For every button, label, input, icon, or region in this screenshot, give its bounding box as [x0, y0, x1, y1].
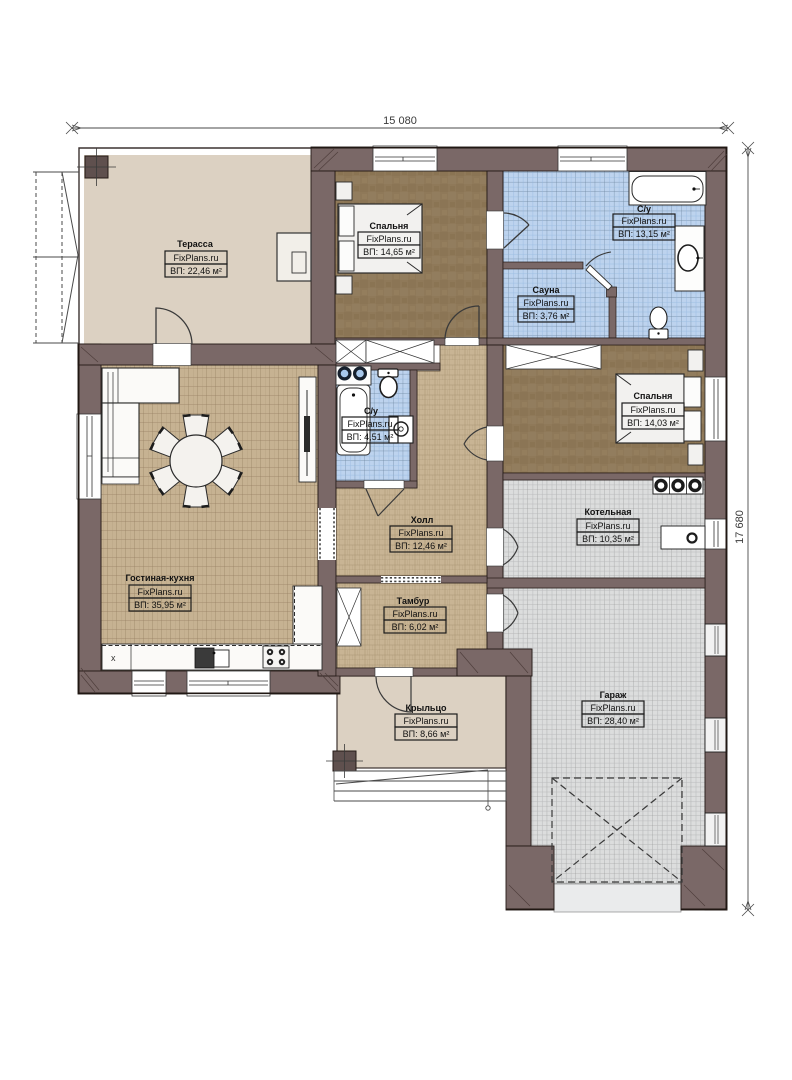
svg-text:FixPlans.ru: FixPlans.ru [590, 703, 635, 713]
svg-text:ВП: 12,46 м²: ВП: 12,46 м² [395, 541, 447, 551]
svg-text:Гараж: Гараж [600, 690, 627, 700]
svg-text:15 080: 15 080 [383, 115, 417, 127]
svg-text:FixPlans.ru: FixPlans.ru [366, 234, 411, 244]
svg-text:ВП: 4,51 м²: ВП: 4,51 м² [347, 432, 394, 442]
svg-text:ВП: 10,35 м²: ВП: 10,35 м² [582, 534, 634, 544]
svg-text:ВП: 8,66 м²: ВП: 8,66 м² [403, 729, 450, 739]
svg-text:ВП: 22,46 м²: ВП: 22,46 м² [170, 266, 222, 276]
svg-text:Спальня: Спальня [370, 221, 409, 231]
svg-text:FixPlans.ru: FixPlans.ru [173, 253, 218, 263]
svg-text:17 680: 17 680 [734, 510, 746, 544]
svg-text:Терасса: Терасса [177, 239, 214, 249]
svg-text:ВП: 28,40 м²: ВП: 28,40 м² [587, 716, 639, 726]
svg-text:Котельная: Котельная [584, 507, 631, 517]
svg-text:С/у: С/у [364, 406, 378, 416]
svg-text:ВП: 14,03 м²: ВП: 14,03 м² [627, 418, 679, 428]
svg-text:FixPlans.ru: FixPlans.ru [398, 528, 443, 538]
svg-text:Гостиная-кухня: Гостиная-кухня [126, 573, 195, 583]
svg-text:ВП: 6,02 м²: ВП: 6,02 м² [392, 622, 439, 632]
svg-text:Тамбур: Тамбур [397, 596, 430, 606]
svg-text:Спальня: Спальня [634, 391, 673, 401]
svg-text:ВП: 14,65 м²: ВП: 14,65 м² [363, 247, 415, 257]
svg-text:x: x [111, 653, 116, 663]
svg-text:FixPlans.ru: FixPlans.ru [585, 521, 630, 531]
svg-text:С/у: С/у [637, 204, 651, 214]
svg-text:FixPlans.ru: FixPlans.ru [403, 716, 448, 726]
svg-text:FixPlans.ru: FixPlans.ru [621, 216, 666, 226]
svg-text:FixPlans.ru: FixPlans.ru [523, 298, 568, 308]
svg-text:ВП: 13,15 м²: ВП: 13,15 м² [618, 229, 670, 239]
svg-text:ВП: 3,76 м²: ВП: 3,76 м² [523, 311, 570, 321]
svg-text:Сауна: Сауна [532, 285, 560, 295]
svg-text:ВП: 35,95 м²: ВП: 35,95 м² [134, 600, 186, 610]
svg-text:FixPlans.ru: FixPlans.ru [392, 609, 437, 619]
svg-text:Холл: Холл [411, 515, 434, 525]
svg-text:FixPlans.ru: FixPlans.ru [630, 405, 675, 415]
svg-text:FixPlans.ru: FixPlans.ru [347, 419, 392, 429]
svg-text:FixPlans.ru: FixPlans.ru [137, 587, 182, 597]
svg-text:Крыльцо: Крыльцо [406, 703, 447, 713]
